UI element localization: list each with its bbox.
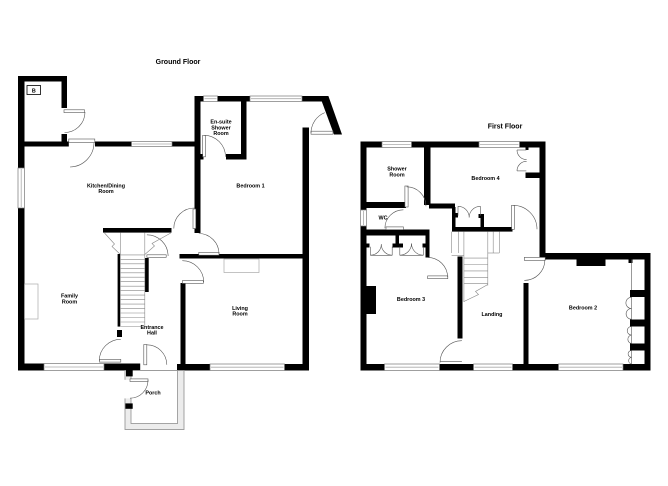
svg-text:Hall: Hall	[147, 331, 157, 337]
svg-text:Porch: Porch	[145, 391, 160, 397]
svg-text:First Floor: First Floor	[488, 124, 523, 131]
svg-text:Room: Room	[98, 189, 113, 195]
svg-text:Bedroom 1: Bedroom 1	[236, 184, 264, 190]
svg-text:Room: Room	[62, 299, 77, 305]
svg-text:Room: Room	[389, 172, 404, 178]
svg-text:Room: Room	[232, 312, 247, 318]
svg-text:Bedroom 4: Bedroom 4	[471, 176, 499, 182]
svg-text:Landing: Landing	[482, 312, 503, 318]
svg-text:Room: Room	[213, 131, 228, 137]
svg-text:Bedroom 2: Bedroom 2	[569, 306, 597, 312]
svg-text:Bedroom 3: Bedroom 3	[397, 297, 425, 303]
svg-text:WC: WC	[379, 216, 388, 222]
svg-text:B: B	[32, 89, 36, 95]
svg-text:Ground Floor: Ground Floor	[156, 59, 201, 66]
